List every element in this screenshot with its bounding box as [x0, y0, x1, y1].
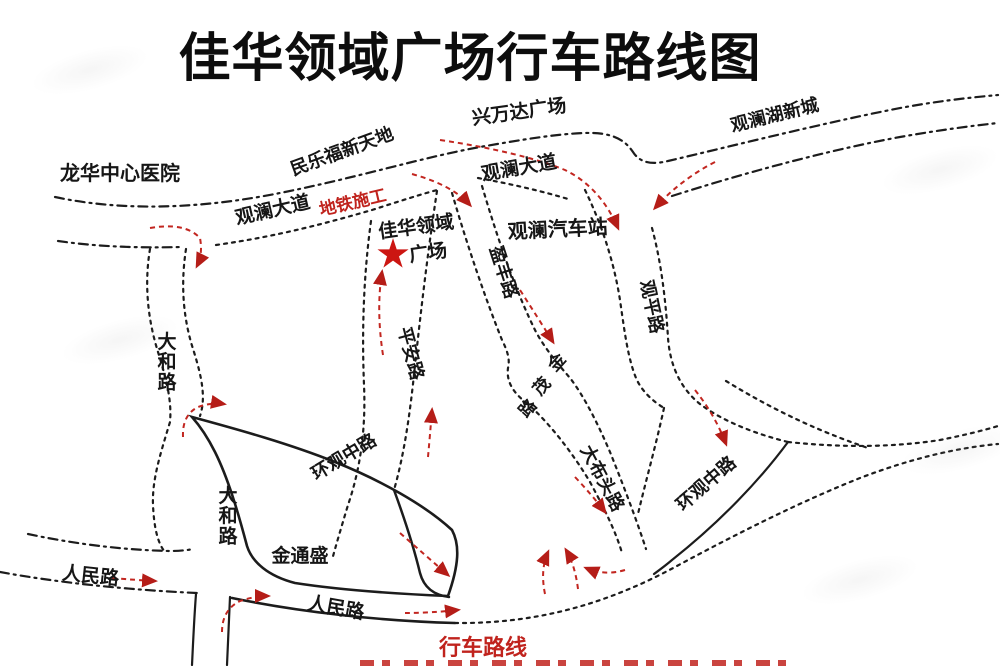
label-pingan-road: 平安路 — [394, 325, 429, 384]
label-jintongsheng: 金通盛 — [270, 544, 328, 567]
label-renmin-road-1: 人民路 — [61, 561, 121, 590]
label-longhua-hospital: 龙华中心医院 — [60, 161, 180, 185]
road-pingan-west — [332, 221, 371, 560]
label-subway-construction: 地铁施工 — [317, 185, 388, 220]
label-dabutou-road: 大布头路 — [577, 441, 630, 515]
label-jinmao-road: 茂 — [528, 373, 554, 399]
route-arrow-yingfeng-down — [520, 290, 553, 342]
label-renmin-road-2: 人民路 — [306, 591, 367, 624]
road-dahe-west — [147, 249, 170, 553]
route-arrow-pingan-up — [428, 410, 432, 457]
road-east-upper-diagonal — [726, 381, 868, 448]
plaza-star-marker: ★ — [377, 233, 409, 274]
label-guanlan-avenue-1: 观澜大道 — [233, 190, 312, 230]
road-guanlan-avenue-south-left — [58, 241, 182, 247]
road-dahe-east — [183, 249, 203, 416]
label-jinmao-road: 路 — [514, 394, 541, 421]
clipped-caption-strip — [360, 660, 790, 666]
label-yingfeng-road: 盈丰路 — [486, 242, 523, 302]
route-arrow-junction-up-1 — [543, 552, 548, 594]
map-title: 佳华领域广场行车路线图 — [140, 16, 800, 91]
label-guanlan-bus-station: 观澜汽车站 — [507, 214, 608, 243]
route-arrow-into-dahe — [150, 226, 201, 266]
label-xingwanda-plaza: 兴万达广场 — [470, 94, 567, 130]
label-dahe-road-2: 大和路 — [218, 484, 238, 547]
label-route-legend: 行车路线 — [438, 635, 527, 660]
route-arrow-into-yingfeng — [412, 174, 470, 205]
label-jinmao-road: 金 — [543, 348, 571, 376]
route-arrow-renmin-east — [405, 610, 458, 613]
road-guanping-east — [652, 228, 788, 442]
label-guanlanhu-new-town: 观澜湖新城 — [728, 94, 820, 136]
road-dahe-lower-west — [192, 594, 196, 665]
label-huanguan-middle-road-2: 环观中路 — [672, 451, 741, 515]
route-arrow-junction-feeder — [586, 568, 625, 573]
road-huanguan-right-nw — [638, 408, 664, 514]
label-jiahua-lingyu-line2: 广场 — [408, 239, 449, 267]
route-arrow-up-to-plaza — [379, 272, 383, 355]
label-guanlan-avenue-2: 观澜大道 — [479, 150, 558, 186]
route-arrow-avenue-to-fork — [440, 140, 618, 228]
route-arrow-to-renmin-corner — [400, 533, 448, 575]
route-map-canvas: 佳华领域广场行车路线图 — [0, 0, 1000, 666]
route-arrow-junction-up-2 — [566, 550, 578, 589]
road-dahe-lower-east — [227, 597, 230, 665]
road-renmin-north-left — [28, 534, 194, 551]
road-yingfeng-west — [452, 193, 622, 553]
